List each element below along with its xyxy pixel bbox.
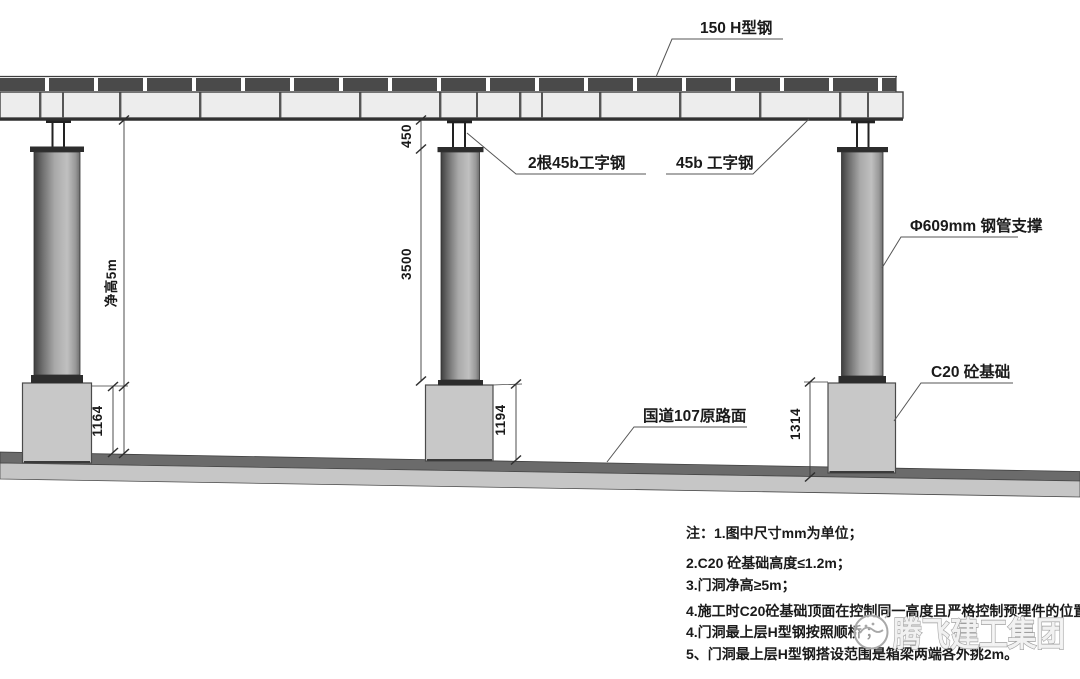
note-line: 3.门洞净高≥5m； [686,577,796,594]
dim-foundation-left: 1164 [90,405,105,436]
dim-clear-height: 净高5m [103,259,119,308]
dim-column-height: 3500 [399,248,414,280]
label-road: 国道107原路面 [643,406,746,425]
column-right [837,120,888,383]
label-foundation: C20 砼基础 [931,362,1010,381]
column-base-plate [438,380,483,386]
column-cap-plate [30,147,84,153]
column-base-plate [31,375,83,383]
note-line: 2.C20 砼基础高度≤1.2m； [686,555,851,572]
h-beam-150-row [0,78,896,91]
label-ibeam: 45b 工字钢 [676,153,754,172]
ibeam-45b-row [0,92,903,118]
column-middle [438,121,484,386]
stub-top-plate [851,121,875,124]
steel-pipe [842,152,884,376]
label-double-ibeam: 2根45b工字钢 [528,153,625,172]
steel-pipe [441,152,480,380]
leader-h-beam [656,39,783,77]
road-surface [0,452,1080,497]
label-h-beam: 150 H型钢 [700,18,772,37]
foundation-middle [426,385,494,461]
watermark-text: 腾飞建工集团 [893,616,1065,654]
note-line: 4.门洞最上层H型钢按照顺桥 ； [686,624,880,641]
dim-foundation-middle: 1194 [493,404,508,435]
foundation-left [23,383,92,463]
label-pipe-support: Φ609mm 钢管支撑 [910,216,1043,235]
column-cap-plate [837,147,888,152]
column-cap-plate [438,147,484,152]
note-line: 注：1.图中尺寸mm为单位； [686,525,863,542]
watermark-logo-circle [855,616,888,649]
elevation-diagram: 净高5m 1164 450 3500 1194 1314 150 H型钢 2根4… [0,0,1080,679]
leader-road [607,427,747,462]
steel-pipe [34,152,80,375]
leader-foundation [894,383,1013,421]
beam-assembly [0,77,903,120]
dim-stub-height: 450 [399,124,414,148]
dim-foundation-right: 1314 [788,408,803,440]
leader-pipe-support [882,237,1018,268]
stub-top-plate [447,121,472,124]
column-left [30,120,84,383]
construction-drawing-page: 净高5m 1164 450 3500 1194 1314 150 H型钢 2根4… [0,0,1080,679]
foundation-right [828,383,896,473]
column-base-plate [839,376,887,383]
